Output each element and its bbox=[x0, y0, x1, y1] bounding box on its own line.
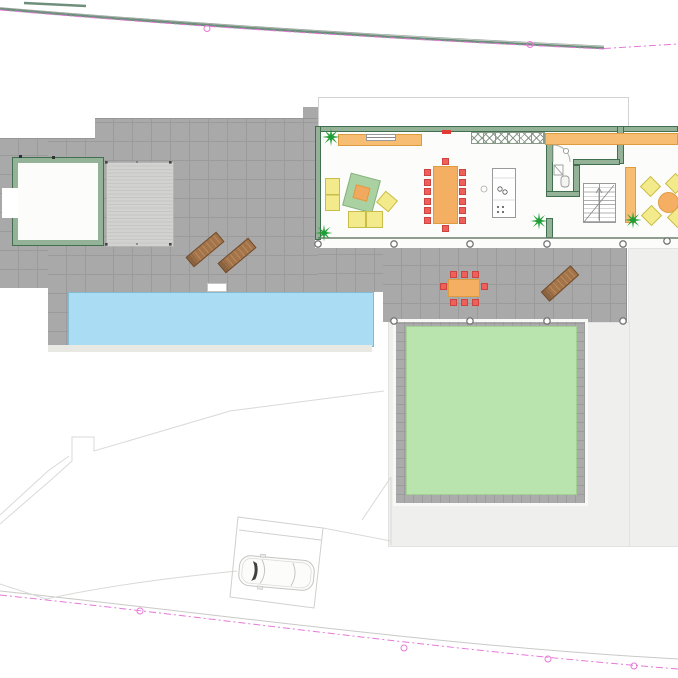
rear-window bbox=[291, 563, 296, 586]
wardrobe-east bbox=[625, 167, 636, 223]
boundary-marker bbox=[545, 656, 551, 662]
pool-edge-strip bbox=[48, 345, 372, 352]
dining-chair bbox=[424, 217, 431, 224]
survey-dot bbox=[52, 156, 55, 159]
pool-house-door-gap bbox=[2, 188, 18, 218]
lawn bbox=[406, 326, 577, 495]
pool-house-interior bbox=[18, 163, 98, 240]
hall-wall-north bbox=[573, 159, 620, 165]
kitchen-island bbox=[492, 168, 516, 218]
dining-chair bbox=[442, 225, 449, 232]
outdoor-chair bbox=[461, 299, 468, 306]
boundary-marker bbox=[204, 26, 210, 32]
dining-chair bbox=[459, 217, 466, 224]
terrace-under-house-west bbox=[318, 248, 383, 292]
outdoor-dining-table bbox=[448, 279, 480, 297]
boundary-marker bbox=[631, 663, 637, 669]
car-front-mark bbox=[251, 561, 258, 581]
outdoor-chair bbox=[481, 283, 488, 290]
wardrobe-band-north bbox=[545, 133, 678, 145]
dining-chair bbox=[442, 158, 449, 165]
outdoor-chair bbox=[450, 271, 457, 278]
dining-chair bbox=[424, 198, 431, 205]
outdoor-chair bbox=[472, 271, 479, 278]
dining-chair bbox=[459, 179, 466, 186]
staircase bbox=[583, 183, 616, 223]
ground-right-strip bbox=[628, 248, 678, 547]
parking-spot bbox=[230, 517, 323, 608]
dining-chair bbox=[424, 179, 431, 186]
outdoor-chair bbox=[472, 299, 479, 306]
boundary-marker bbox=[401, 645, 407, 651]
boundary-marker bbox=[527, 42, 533, 48]
breakfast-table bbox=[658, 192, 678, 213]
sofa bbox=[348, 211, 383, 228]
car bbox=[238, 552, 316, 593]
property-boundary-north bbox=[0, 3, 678, 49]
dining-chair bbox=[459, 207, 466, 214]
dining-chair bbox=[459, 169, 466, 176]
dining-table bbox=[433, 166, 458, 224]
site-plan-canvas bbox=[0, 0, 678, 678]
outdoor-chair bbox=[440, 283, 447, 290]
coffee-table bbox=[352, 184, 370, 201]
property-boundary-south bbox=[0, 591, 678, 669]
sofa bbox=[325, 178, 340, 211]
dining-chair bbox=[424, 169, 431, 176]
outdoor-chair bbox=[461, 271, 468, 278]
dining-chair bbox=[424, 207, 431, 214]
swimming-pool bbox=[68, 292, 374, 347]
house-wall-west bbox=[315, 126, 321, 240]
survey-dot bbox=[19, 155, 22, 158]
mirror bbox=[258, 586, 263, 589]
terrace-house-corner bbox=[303, 107, 318, 118]
kitchen-cabinets bbox=[471, 132, 545, 144]
dining-chair bbox=[459, 188, 466, 195]
outdoor-chair bbox=[450, 299, 457, 306]
dining-chair bbox=[424, 188, 431, 195]
windshield bbox=[260, 560, 266, 584]
mirror bbox=[260, 554, 265, 557]
bathroom-wall-south bbox=[546, 191, 580, 197]
boundary-marker bbox=[137, 608, 143, 614]
pool-ladder bbox=[207, 283, 227, 292]
terrace-east bbox=[383, 248, 627, 322]
door-marker bbox=[442, 130, 451, 134]
tv bbox=[366, 134, 396, 141]
hall-wall-stub bbox=[546, 218, 553, 238]
wood-deck bbox=[106, 162, 174, 247]
terrace-pool-side-strip bbox=[48, 287, 68, 350]
bathroom-wall-west bbox=[546, 139, 553, 197]
house-threshold bbox=[315, 239, 678, 248]
dining-chair bbox=[459, 198, 466, 205]
footpath bbox=[0, 391, 391, 599]
